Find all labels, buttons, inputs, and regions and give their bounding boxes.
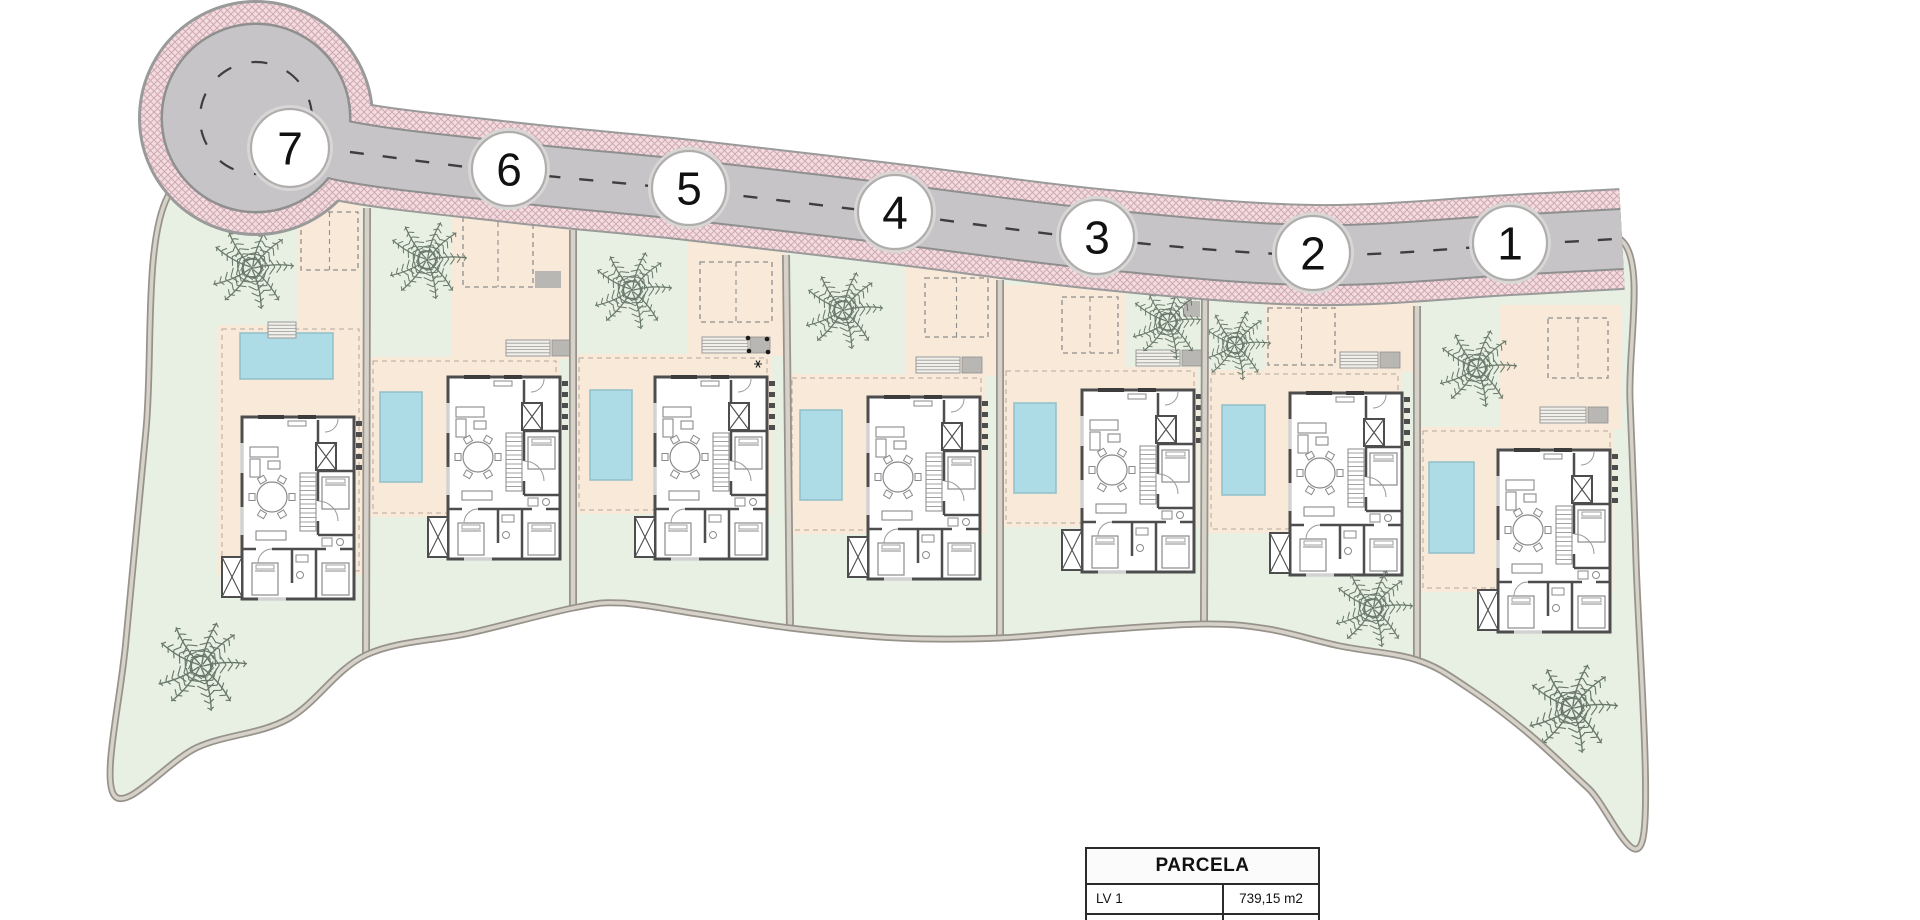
- plot-number-1: 1: [1497, 218, 1523, 270]
- bbq-icon: [766, 350, 771, 355]
- plot-badge-6[interactable]: 6: [470, 130, 549, 209]
- bbq-icon: [746, 336, 751, 341]
- entry-steps: [916, 357, 960, 373]
- site-plan-svg: 7654321: [0, 0, 1920, 920]
- parcel-table-row-partial: [1087, 913, 1318, 920]
- plot-number-5: 5: [676, 163, 702, 215]
- swimming-pool: [1222, 405, 1265, 495]
- plot-number-6: 6: [496, 144, 522, 196]
- parcel-table-header: PARCELA: [1087, 849, 1318, 885]
- entry-steps: [268, 322, 296, 338]
- swimming-pool: [1429, 462, 1474, 553]
- plot-badge-7[interactable]: 7: [249, 107, 332, 190]
- plot-badge-1[interactable]: 1: [1471, 204, 1550, 283]
- villa-floorplan-5: [635, 375, 775, 559]
- villa-floorplan-3: [1062, 388, 1202, 572]
- plot-number-3: 3: [1084, 212, 1110, 264]
- villa-floorplan-1: [1478, 448, 1618, 632]
- villa-floorplan-6: [428, 375, 568, 559]
- villa-floorplan-2: [1270, 391, 1410, 575]
- swimming-pool: [1014, 403, 1056, 493]
- plot-number-7: 7: [277, 123, 303, 175]
- plot-number-2: 2: [1300, 228, 1326, 280]
- bbq-icon: [765, 337, 770, 342]
- entry-steps: [1540, 407, 1586, 423]
- plot-badge-2[interactable]: 2: [1274, 214, 1353, 293]
- plot-number-4: 4: [882, 187, 908, 239]
- kerb-ramp: [535, 271, 561, 288]
- swimming-pool: [380, 392, 422, 482]
- villa-floorplan-4: [848, 395, 988, 579]
- bbq-icon: [747, 349, 752, 354]
- entry-steps: [1340, 352, 1378, 368]
- plot-badge-4[interactable]: 4: [856, 173, 935, 252]
- parcel-id: LV 1: [1087, 885, 1224, 913]
- plot-badge-3[interactable]: 3: [1058, 198, 1137, 277]
- plot-badge-5[interactable]: 5: [650, 149, 729, 228]
- entry-landing: [1588, 407, 1608, 423]
- site-plan: 7654321 PARCELA LV 1 739,15 m2: [0, 0, 1920, 920]
- entry-steps: [702, 337, 748, 353]
- parcel-table: PARCELA LV 1 739,15 m2: [1085, 847, 1320, 920]
- entry-landing: [1182, 350, 1202, 366]
- swimming-pool: [590, 390, 632, 480]
- entry-landing: [1380, 352, 1400, 368]
- entry-landing: [962, 357, 982, 373]
- villa-floorplan-7: [222, 415, 362, 599]
- swimming-pool: [800, 410, 842, 500]
- parcel-table-row: LV 1 739,15 m2: [1087, 885, 1318, 913]
- entry-steps: [506, 340, 550, 356]
- swimming-pool: [240, 333, 333, 379]
- parcel-area: 739,15 m2: [1224, 885, 1318, 913]
